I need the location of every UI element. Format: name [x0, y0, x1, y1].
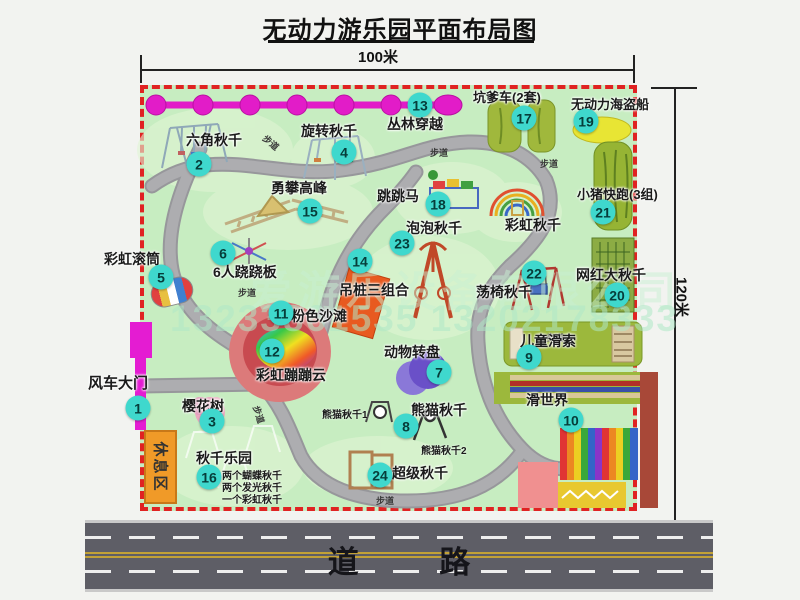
label-jungle-crossing: 丛林穿越: [387, 114, 443, 134]
badge-8: 8: [394, 414, 419, 439]
road: 道 路: [85, 520, 713, 592]
label-panda-swing: 熊猫秋千: [411, 400, 467, 420]
badge-1: 1: [126, 396, 151, 421]
label-rainbow-roller: 彩虹滚筒: [104, 249, 160, 269]
badge-14: 14: [348, 249, 373, 274]
label-climbing-peak: 勇攀高峰: [271, 178, 327, 198]
badge-11: 11: [269, 301, 294, 326]
badge-15: 15: [298, 199, 323, 224]
badge-17: 17: [512, 106, 537, 131]
label-rotating-swing: 旋转秋千: [301, 121, 357, 141]
label-slide-world: 滑世界: [526, 390, 568, 410]
badge-5: 5: [149, 265, 174, 290]
badge-6: 6: [211, 241, 236, 266]
badge-3: 3: [200, 409, 225, 434]
rest-area-label: 休息区: [150, 441, 171, 492]
label-jumping-horse: 跳跳马: [377, 186, 419, 206]
badge-22: 22: [522, 261, 547, 286]
trail-label-6: 步道: [376, 494, 394, 507]
width-dimension-label: 100米: [358, 46, 398, 67]
badge-23: 23: [390, 231, 415, 256]
badge-13: 13: [408, 93, 433, 118]
width-dim-tick-left: [140, 55, 142, 83]
label-bubble-swing: 泡泡秋千: [406, 218, 462, 238]
label-panda-swing-2: 熊猫秋千2: [421, 442, 467, 457]
label-swing-note-3: 一个彩虹秋千: [222, 491, 282, 506]
label-super-swing: 超级秋千: [392, 463, 448, 483]
trail-label-2: 步道: [430, 146, 448, 159]
label-rainbow-bounce-cloud: 彩虹蹦蹦云: [256, 365, 326, 385]
label-panda-swing-1: 熊猫秋千1: [322, 406, 368, 421]
badge-21: 21: [591, 200, 616, 225]
height-dimension-label: 120米: [672, 277, 693, 317]
park-layout-plan: 无动力游乐园平面布局图 100米 120米: [0, 0, 800, 600]
badge-16: 16: [197, 465, 222, 490]
rest-area-box: 休息区: [144, 430, 177, 504]
title-underline: [268, 40, 534, 43]
width-dim-tick-right: [633, 55, 635, 83]
label-big-swing: 网红大秋千: [576, 265, 646, 285]
trail-label-4: 步道: [238, 286, 256, 299]
width-dimension-line: [141, 69, 635, 71]
trail-label-3: 步道: [540, 157, 558, 170]
label-hanging-pile: 吊桩三组合: [339, 280, 409, 300]
badge-24: 24: [368, 463, 393, 488]
badge-9: 9: [517, 345, 542, 370]
badge-10: 10: [559, 408, 584, 433]
height-dim-tick-top: [651, 87, 697, 89]
badge-7: 7: [427, 360, 452, 385]
windmill-gate-icon: [130, 322, 152, 358]
badge-4: 4: [332, 140, 357, 165]
road-label: 道 路: [85, 537, 713, 582]
label-rainbow-swing: 彩虹秋千: [505, 215, 561, 235]
label-hexagon-swing: 六角秋千: [186, 130, 242, 150]
badge-12: 12: [260, 339, 285, 364]
label-windmill-gate: 风车大门: [88, 372, 148, 393]
label-pink-beach: 粉色沙滩: [291, 306, 347, 326]
label-pit-car: 坑爹车(2套): [473, 87, 541, 106]
badge-2: 2: [187, 152, 212, 177]
label-piggy-run: 小猪快跑(3组): [577, 184, 658, 203]
badge-18: 18: [426, 192, 451, 217]
badge-20: 20: [605, 283, 630, 308]
label-swing-chair: 荡椅秋千: [476, 282, 532, 302]
badge-19: 19: [574, 109, 599, 134]
label-animal-turntable: 动物转盘: [384, 342, 440, 362]
